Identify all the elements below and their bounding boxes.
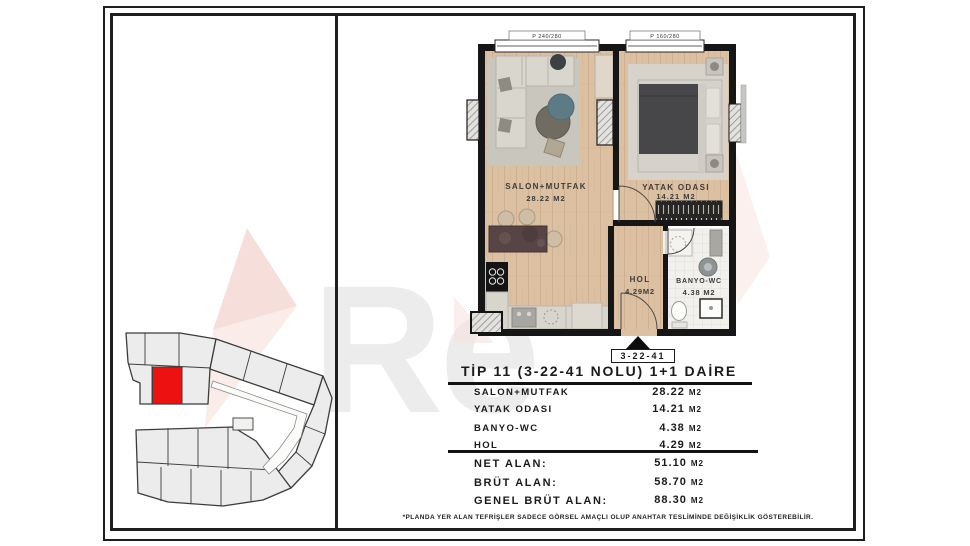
table-row-banyo: BANYO-WC 4.38 M2 xyxy=(448,423,756,436)
salon-area: 28.22 M2 xyxy=(526,194,565,203)
right-strip xyxy=(741,85,746,143)
unit-title: TİP 11 (3-22-41 NOLU) 1+1 DAİRE xyxy=(448,363,750,379)
hatched-cabinet xyxy=(597,100,613,145)
disclaimer-footnote: *PLANDA YER ALAN TEFRİŞLER SADECE GÖRSEL… xyxy=(388,514,828,521)
left-shaft xyxy=(467,100,479,140)
window-1: P 240/280 xyxy=(495,31,599,52)
hall-area: 4.29M2 xyxy=(625,287,655,296)
bathroom-label: BANYO-WC xyxy=(676,278,722,285)
site-plan xyxy=(113,320,343,515)
entrance-opening xyxy=(621,329,657,336)
floor-plan: P 240/280 P 160/280 SALON+MUTFAK 28.22 M… xyxy=(450,28,762,358)
unit-marker-text: 3-22-41 xyxy=(620,351,665,361)
row-value: 14.21 M2 xyxy=(652,403,702,415)
table-row-brut-alan: BRÜT ALAN: 58.70 M2 xyxy=(448,477,756,490)
total-value: 88.30 M2 xyxy=(654,494,704,506)
window-2: P 160/280 xyxy=(626,31,704,52)
unit-marker-label: 3-22-41 xyxy=(611,349,675,363)
hall-label: HOL xyxy=(630,275,651,284)
panel-divider xyxy=(335,14,338,530)
highlighted-unit xyxy=(153,367,183,404)
row-label: BANYO-WC xyxy=(474,423,539,434)
window-2-label: P 160/280 xyxy=(650,34,679,40)
table-row-genel-brut-alan: GENEL BRÜT ALAN: 88.30 M2 xyxy=(448,495,756,508)
unit-marker-triangle xyxy=(625,336,651,350)
total-label: BRÜT ALAN: xyxy=(474,477,557,489)
bottom-left-shaft xyxy=(471,312,502,333)
wardrobe xyxy=(656,201,722,222)
side-table xyxy=(550,54,566,70)
row-value: 28.22 M2 xyxy=(652,386,702,398)
salon-label: SALON+MUTFAK xyxy=(505,182,587,191)
table-row-salon: SALON+MUTFAK 28.22 M2 xyxy=(448,387,756,400)
row-label: YATAK ODASI xyxy=(474,404,553,415)
row-value: 4.38 M2 xyxy=(659,422,702,434)
total-value: 51.10 M2 xyxy=(654,457,704,469)
bedroom-area: 14.21 M2 xyxy=(656,192,695,201)
tv-console xyxy=(595,55,613,98)
table-row-yatak: YATAK ODASI 14.21 M2 xyxy=(448,404,756,417)
total-value: 58.70 M2 xyxy=(654,476,704,488)
window-1-label: P 240/280 xyxy=(532,34,561,40)
total-label: GENEL BRÜT ALAN: xyxy=(474,495,608,507)
right-shaft xyxy=(729,104,741,142)
stove xyxy=(486,262,508,292)
core-block xyxy=(233,418,253,430)
table-row-net-alan: NET ALAN: 51.10 M2 xyxy=(448,458,756,471)
bathroom-area: 4.38 M2 xyxy=(683,288,716,297)
total-label: NET ALAN: xyxy=(474,458,547,470)
totals-rule xyxy=(448,450,758,453)
bedroom-label: YATAK ODASI xyxy=(642,183,710,192)
title-rule xyxy=(448,382,752,385)
row-label: SALON+MUTFAK xyxy=(474,387,569,398)
brochure-page: { "watermark": { "text": "Re" }, "site_p… xyxy=(0,0,970,546)
